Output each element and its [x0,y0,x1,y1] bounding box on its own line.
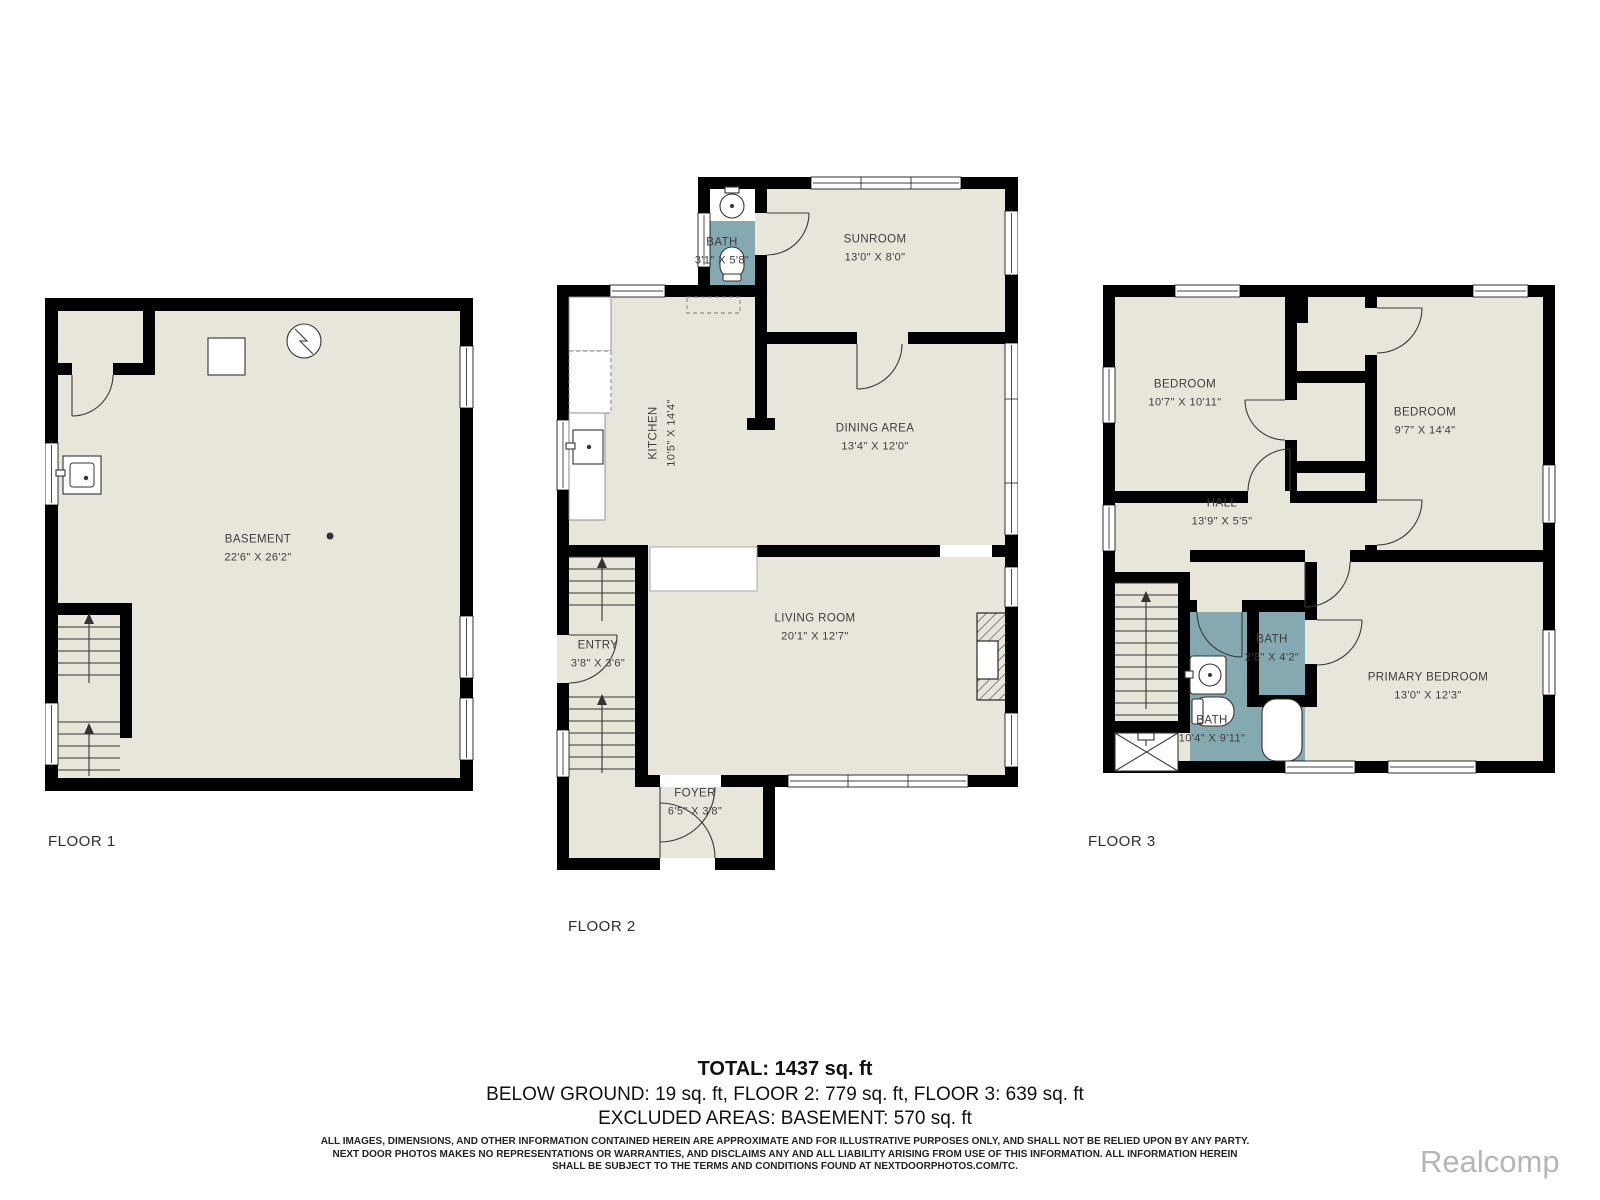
room-label-sunroom: SUNROOM 13'0" X 8'0" [844,232,907,267]
room-label-entry: ENTRY 3'8" X 3'6" [571,638,625,673]
floor-1-label: FLOOR 1 [48,833,116,850]
room-name: BEDROOM [1148,377,1221,395]
room-dims: 2'8" X 4'2" [1245,649,1299,666]
room-dims: 6'5" X 3'8" [668,803,722,820]
room-label-bedroom-2: BEDROOM 9'7" X 14'4" [1394,405,1456,440]
room-dims: 9'7" X 14'4" [1394,422,1456,439]
floor-2-drawing [553,175,1018,875]
room-dims: 10'4" X 9'11" [1179,730,1246,747]
disclaimer-line-3: SHALL BE SUBJECT TO THE TERMS AND CONDIT… [185,1161,1385,1174]
room-name: FOYER [668,786,722,804]
room-name: LIVING ROOM [774,611,855,629]
room-dims: 13'9" X 5'5" [1192,513,1253,530]
bathtub-icon [1262,699,1302,761]
room-name: ENTRY [571,638,625,656]
room-name: BASEMENT [224,532,291,550]
room-label-dining-area: DINING AREA 13'4" X 12'0" [836,421,915,456]
room-dims: 10'7" X 10'11" [1148,394,1221,411]
plan-dot-icon [327,533,334,540]
disclaimer-line-2: NEXT DOOR PHOTOS MAKES NO REPRESENTATION… [185,1149,1385,1162]
room-dims: 13'0" X 8'0" [844,249,907,266]
room-label-hall: HALL 13'9" X 5'5" [1192,496,1253,531]
room-name: HALL [1192,496,1253,514]
room-dims: 20'1" X 12'7" [774,628,855,645]
floor-areas: BELOW GROUND: 19 sq. ft, FLOOR 2: 779 sq… [185,1084,1385,1106]
room-label-bath-small: BATH 2'8" X 4'2" [1245,632,1299,667]
room-label-primary-bedroom: PRIMARY BEDROOM 13'0" X 12'3" [1368,670,1489,705]
room-name: SUNROOM [844,232,907,250]
room-dims: 13'4" X 12'0" [836,438,915,455]
floor-3-drawing [1100,283,1560,783]
room-label-kitchen: KITCHEN 10'5" X 14'4" [646,399,681,466]
excluded-areas: EXCLUDED AREAS: BASEMENT: 570 sq. ft [185,1108,1385,1130]
total-area: TOTAL: 1437 sq. ft [185,1058,1385,1081]
room-name: BEDROOM [1394,405,1456,423]
room-label-bath-large: BATH 10'4" X 9'11" [1179,713,1246,748]
room-name: BATH [1179,713,1246,731]
bath-sink-icon [1185,656,1226,694]
area-summary: TOTAL: 1437 sq. ft BELOW GROUND: 19 sq. … [185,1058,1385,1174]
water-heater-icon [287,324,321,358]
room-dims: 3'8" X 3'6" [571,655,625,672]
room-name: BATH [695,235,749,253]
furnace-icon [208,338,245,375]
room-name: KITCHEN [646,399,664,466]
room-dims: 13'0" X 12'3" [1368,687,1489,704]
room-name: PRIMARY BEDROOM [1368,670,1489,688]
shower-icon [1115,733,1178,771]
room-label-foyer: FOYER 6'5" X 3'8" [668,786,722,821]
laundry-sink-icon [56,456,101,494]
room-label-bath-2: BATH 3'1" X 5'8" [695,235,749,270]
realcomp-watermark: Realcomp [1420,1144,1560,1180]
disclaimer-line-1: ALL IMAGES, DIMENSIONS, AND OTHER INFORM… [185,1136,1385,1149]
fireplace-icon [977,613,1007,700]
room-dims: 10'5" X 14'4" [663,399,680,466]
room-label-basement: BASEMENT 22'6" X 26'2" [224,532,291,567]
room-name: DINING AREA [836,421,915,439]
room-name: BATH [1245,632,1299,650]
floor-3-label: FLOOR 3 [1088,833,1156,850]
room-label-living-room: LIVING ROOM 20'1" X 12'7" [774,611,855,646]
floor-plan-page: BASEMENT 22'6" X 26'2" BATH 3'1" X 5'8" … [0,0,1600,1200]
room-dims: 22'6" X 26'2" [224,549,291,566]
room-label-bedroom-1: BEDROOM 10'7" X 10'11" [1148,377,1221,412]
disclaimer: ALL IMAGES, DIMENSIONS, AND OTHER INFORM… [185,1136,1385,1174]
floor-2-label: FLOOR 2 [568,918,636,935]
room-dims: 3'1" X 5'8" [695,252,749,269]
stairwell-opening [650,547,757,591]
